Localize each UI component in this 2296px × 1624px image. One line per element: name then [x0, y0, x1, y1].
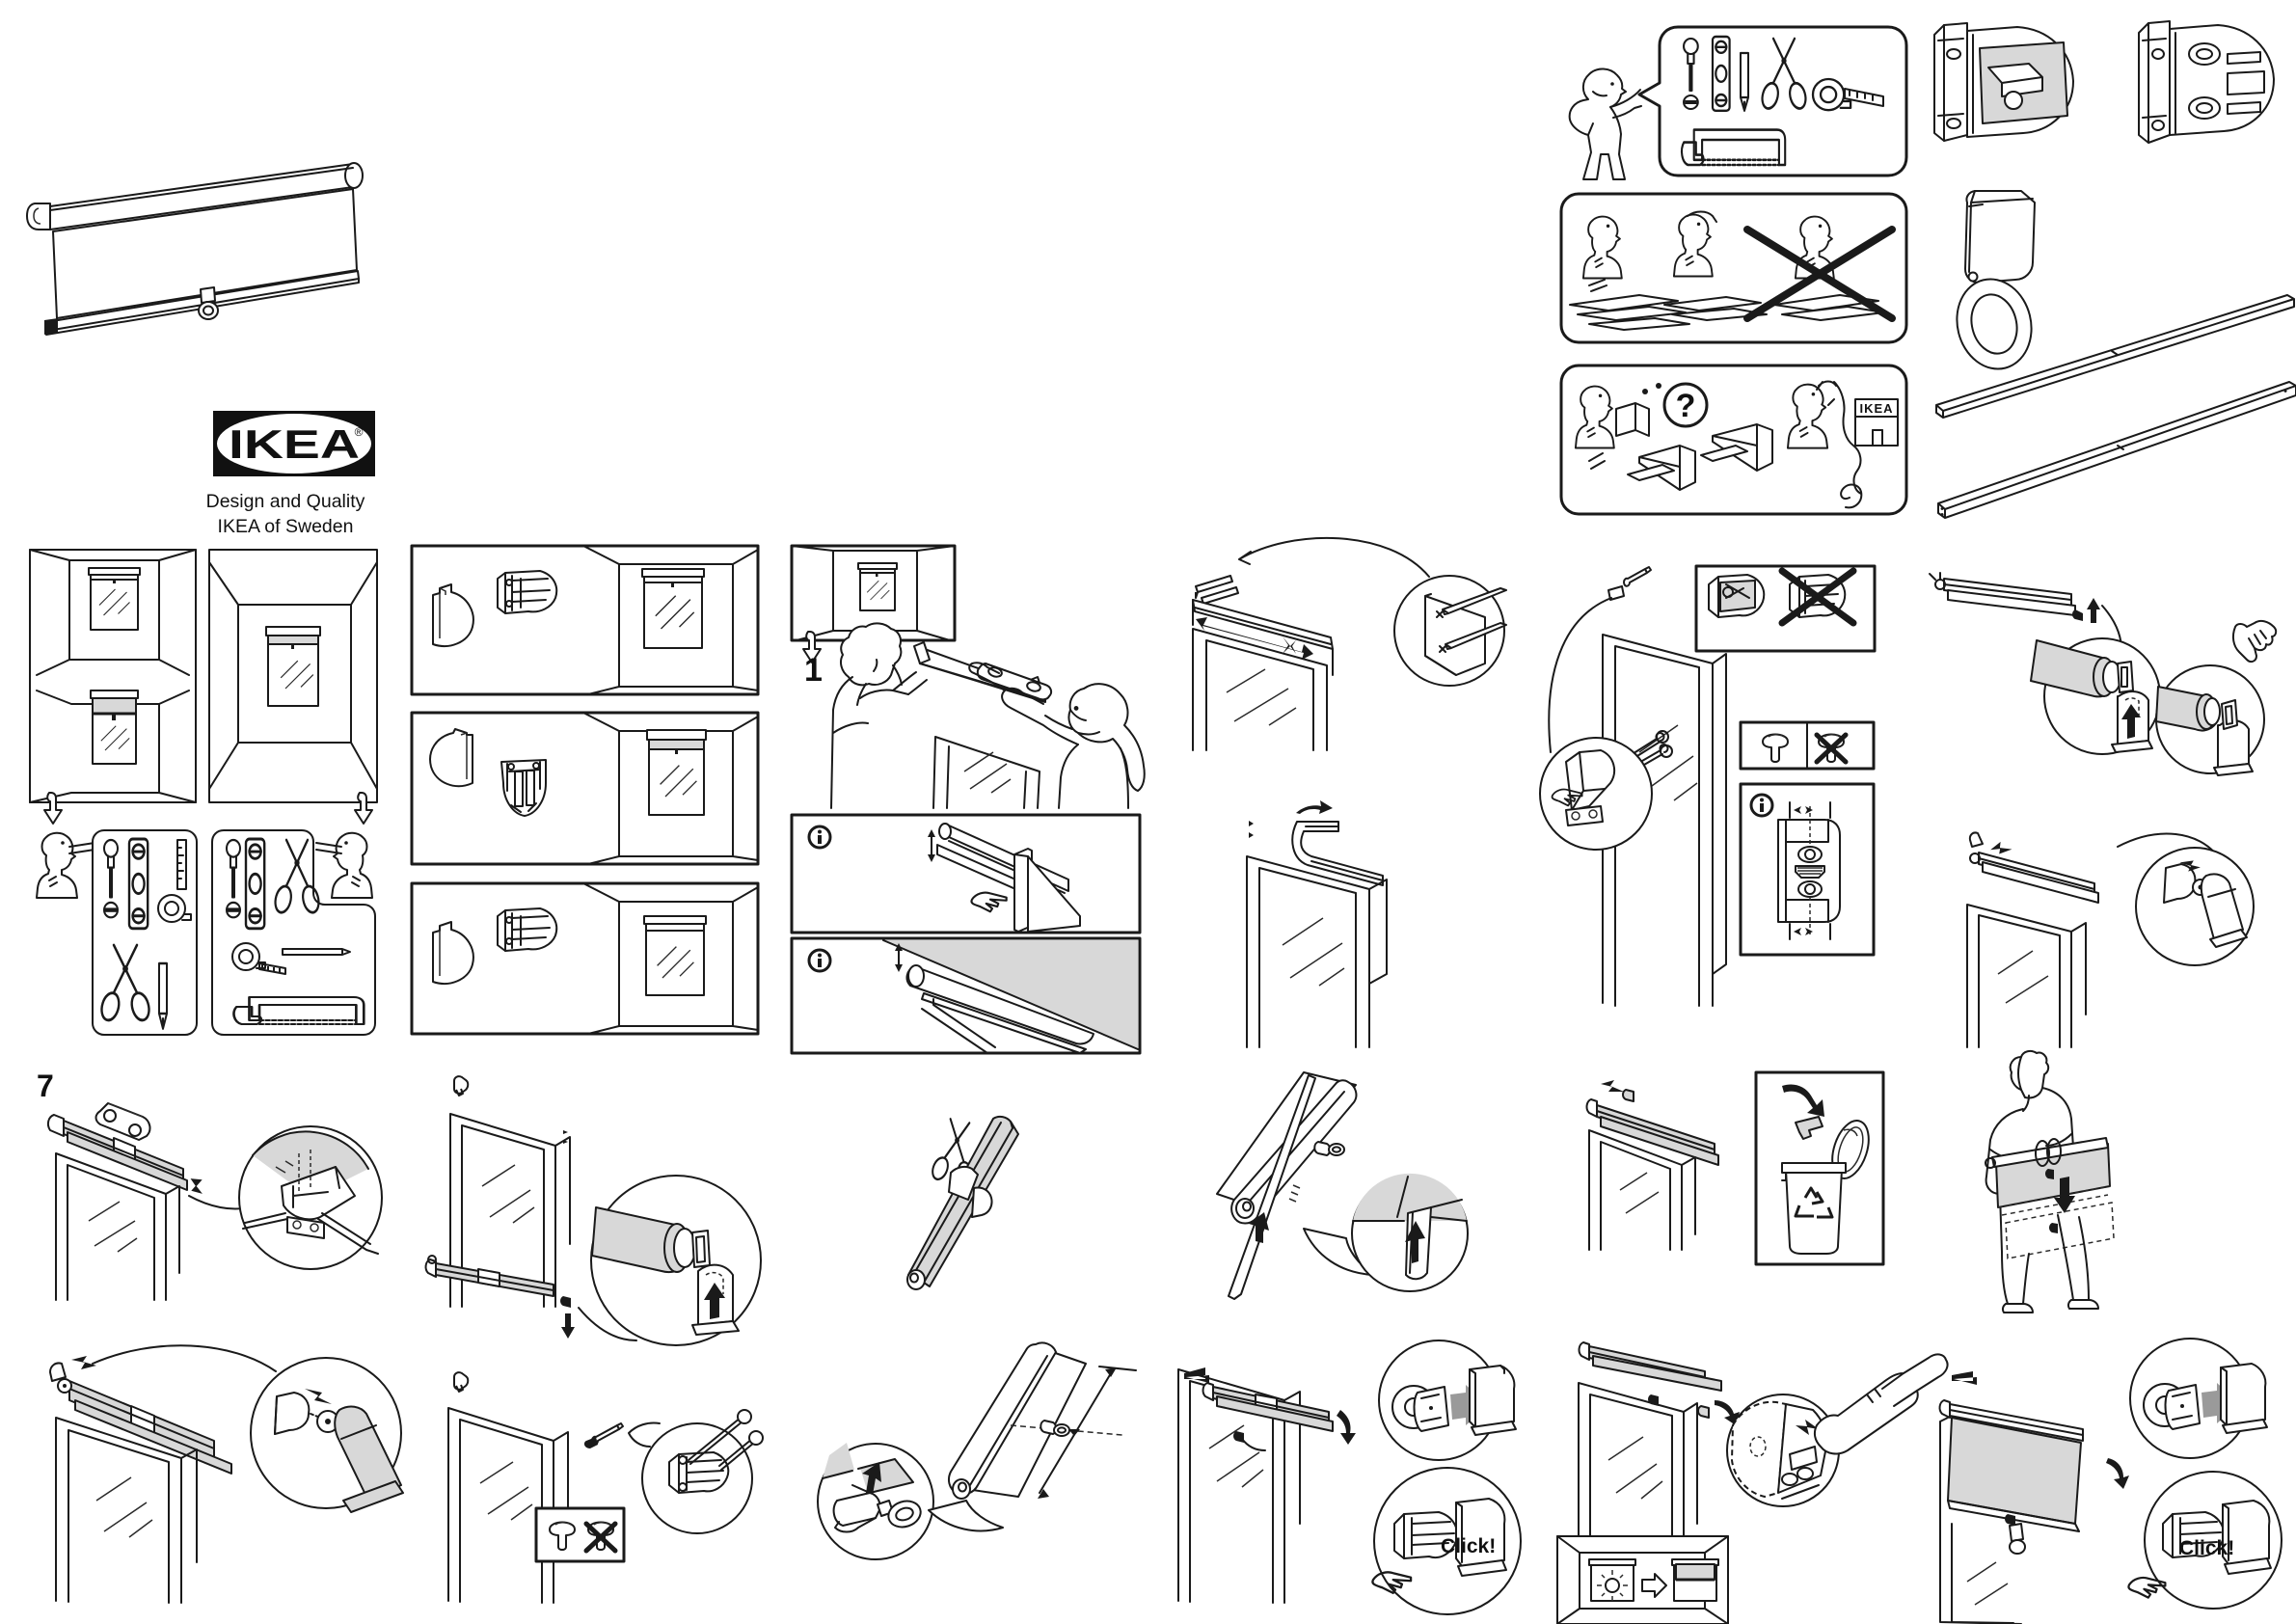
svg-text:®: ®	[355, 425, 364, 439]
svg-text:IKEA: IKEA	[1859, 401, 1893, 416]
svg-text:Click!: Click!	[1441, 1535, 1496, 1557]
svg-text:IKEA of Sweden: IKEA of Sweden	[218, 516, 354, 537]
svg-text:Click!: Click!	[2179, 1537, 2234, 1559]
svg-text:1: 1	[804, 652, 823, 689]
svg-text:7: 7	[37, 1069, 54, 1103]
svg-text:IKEA: IKEA	[229, 421, 360, 467]
svg-text:Design and Quality: Design and Quality	[206, 491, 365, 512]
svg-text:?: ?	[1676, 388, 1696, 424]
